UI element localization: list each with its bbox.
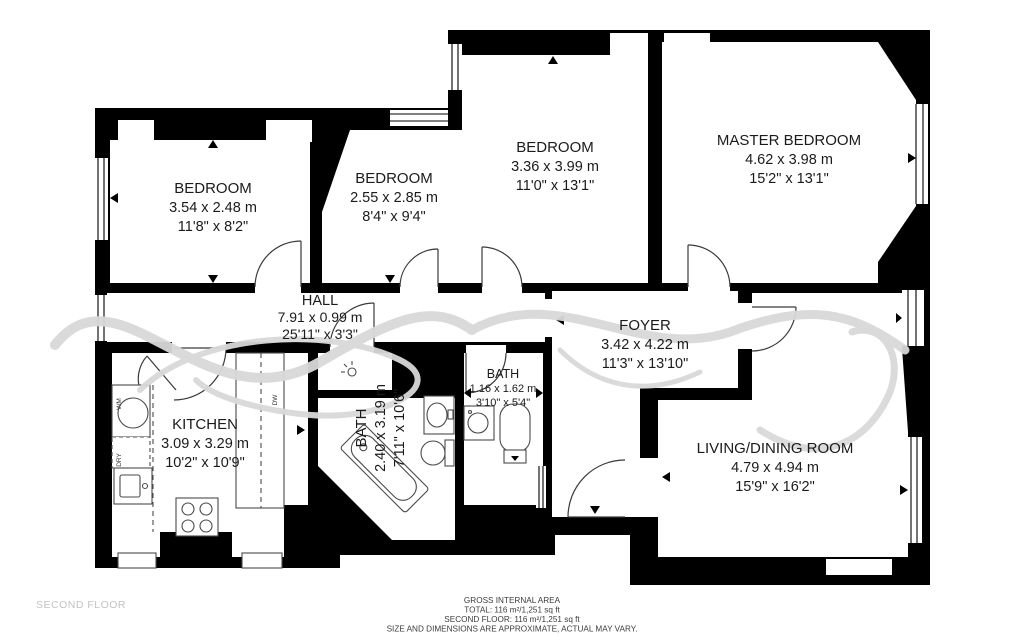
kitchen-name: KITCHEN [172,416,238,433]
label-kitchen: KITCHEN 3.09 x 3.29 m 10'2" x 10'9" [161,416,249,471]
window-bedroom1-left [95,158,108,240]
bedroom-3-imperial: 11'0" x 13'1" [516,178,594,194]
window-master-right [912,104,928,204]
living-name: LIVING/DINING ROOM [697,440,854,457]
master-metric: 4.62 x 3.98 m [745,152,833,168]
bedroom-3-metric: 3.36 x 3.99 m [511,159,599,175]
bedroom-1-name: BEDROOM [174,180,252,197]
window-kitchen-bottom-left [118,553,156,568]
bath-large-metric: 2.40 x 3.19 m [373,384,389,472]
master-name: MASTER BEDROOM [717,132,861,149]
living-imperial: 15'9" x 16'2" [735,479,815,495]
floor-plan-svg: BEDROOM 3.54 x 2.48 m 11'8" x 8'2" BEDRO… [0,0,1024,640]
window-bedroom3-left [448,44,462,90]
bath-small-imperial: 3'10" x 5'4" [476,397,530,409]
kitchen-metric: 3.09 x 3.29 m [161,436,249,452]
hall-imperial: 25'11" x 3'3" [282,326,358,342]
kitchen-corner-wall [284,505,308,557]
bath-small-toilet-icon [500,404,530,463]
label-bedroom-3: BEDROOM 3.36 x 3.99 m 11'0" x 13'1" [511,139,599,194]
bedroom-3-alcove [610,33,648,57]
bedroom-2-metric: 2.55 x 2.85 m [350,190,438,206]
bedroom-1-metric: 3.54 x 2.48 m [169,200,257,216]
window-living-right [908,437,922,543]
master-imperial: 15'2" x 13'1" [749,171,829,187]
hall-name: HALL [302,293,338,309]
window-kitchen-bottom-right [242,553,282,568]
footer-second-floor-area: SECOND FLOOR: 116 m²/1,251 sq ft [444,615,580,624]
bedroom-2-name: BEDROOM [355,170,433,187]
bath-large-imperial: 7'11" x 10'6" [392,389,408,467]
floor-label: SECOND FLOOR [36,599,126,611]
label-bedroom-2: BEDROOM 2.55 x 2.85 m 8'4" x 9'4" [350,170,438,225]
bedroom-1-alcove [266,120,312,142]
washing-machine-label: WM [116,398,123,410]
living-alcove [826,559,892,575]
hall-metric: 7.91 x 0.99 m [278,309,363,325]
bedroom-1-alcove [118,120,154,142]
kitchen-sink-icon [114,468,152,504]
kitchen-imperial: 10'2" x 10'9" [165,455,245,471]
bedroom-2-imperial: 8'4" x 9'4" [362,209,425,225]
label-bedroom-1: BEDROOM 3.54 x 2.48 m 11'8" x 8'2" [169,180,257,235]
footer-total-area: TOTAL: 116 m²/1,251 sq ft [464,606,560,615]
bath-small-sink-icon [464,406,494,440]
master-alcove [664,33,710,55]
floor-plan-page: BEDROOM 3.54 x 2.48 m 11'8" x 8'2" BEDRO… [0,0,1024,640]
footer: GROSS INTERNAL AREA TOTAL: 116 m²/1,251 … [387,596,638,634]
foyer-lobe-floor [552,388,640,517]
washing-machine-icon [112,385,150,437]
bath-large-name: BATH [353,409,370,448]
footer-gross-internal-area: GROSS INTERNAL AREA [464,596,561,605]
bath-large-sink-icon [424,396,454,434]
window-living-top-right [902,290,924,346]
footer-disclaimer: SIZE AND DIMENSIONS ARE APPROXIMATE, ACT… [387,625,638,634]
foyer-imperial: 11'3" x 13'10" [602,356,689,372]
window-bedroom2-top [390,110,448,126]
dryer-label: DRY [116,453,123,467]
bedroom-3-name: BEDROOM [516,139,594,156]
stove-icon [176,498,218,536]
foyer-name: FOYER [619,317,671,334]
bedroom-1-imperial: 11'8" x 8'2" [178,219,248,235]
window-entry [536,466,546,508]
bath-small-name: BATH [487,367,519,381]
room-bedroom-2-floor [322,130,468,283]
bath-small-metric: 1.16 x 1.62 m [470,383,537,395]
bath-large-toilet-icon [421,440,454,466]
living-metric: 4.79 x 4.94 m [731,460,819,476]
dishwasher-label: DW [272,394,279,406]
foyer-metric: 3.42 x 4.22 m [601,337,689,353]
